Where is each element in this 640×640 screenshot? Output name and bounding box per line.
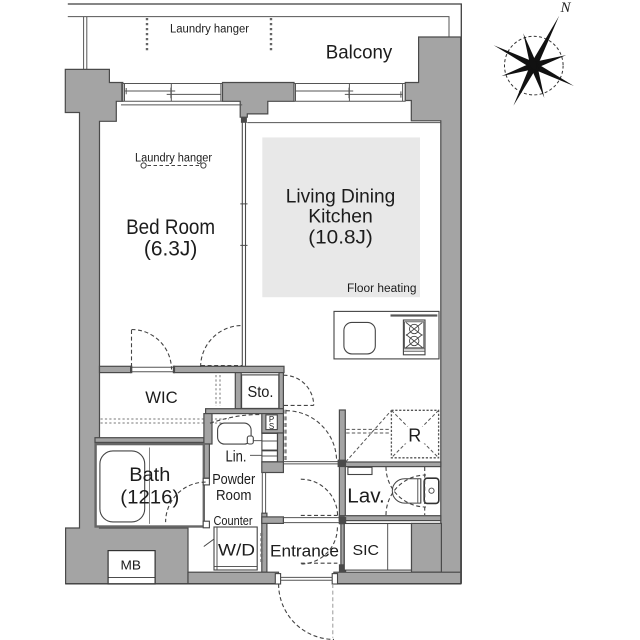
svg-text:(10.8J): (10.8J) xyxy=(308,227,373,249)
svg-text:Entrance: Entrance xyxy=(270,543,339,561)
svg-text:MB: MB xyxy=(121,558,142,573)
svg-text:Lin.: Lin. xyxy=(226,449,247,466)
svg-text:SIC: SIC xyxy=(353,542,380,559)
svg-text:(6.3J): (6.3J) xyxy=(144,238,198,261)
svg-text:WIC: WIC xyxy=(145,388,178,407)
svg-text:Powder: Powder xyxy=(212,471,255,488)
svg-text:Laundry hanger: Laundry hanger xyxy=(170,24,249,36)
svg-text:R: R xyxy=(408,426,421,446)
svg-text:Kitchen: Kitchen xyxy=(308,206,373,228)
svg-text:N: N xyxy=(559,0,571,16)
svg-text:Balcony: Balcony xyxy=(326,42,393,64)
svg-text:Laundry hanger: Laundry hanger xyxy=(135,152,212,164)
svg-text:S: S xyxy=(269,422,274,431)
svg-text:Bath: Bath xyxy=(129,464,170,486)
svg-text:Counter: Counter xyxy=(214,513,254,528)
svg-text:Sto.: Sto. xyxy=(248,384,274,401)
svg-text:W/D: W/D xyxy=(218,541,255,560)
svg-text:Living Dining: Living Dining xyxy=(286,185,396,207)
svg-text:Room: Room xyxy=(216,487,252,504)
svg-text:Floor heating: Floor heating xyxy=(347,283,417,295)
svg-text:Lav.: Lav. xyxy=(347,485,385,507)
svg-text:Bed Room: Bed Room xyxy=(126,216,215,239)
svg-text:(1216): (1216) xyxy=(120,487,179,509)
